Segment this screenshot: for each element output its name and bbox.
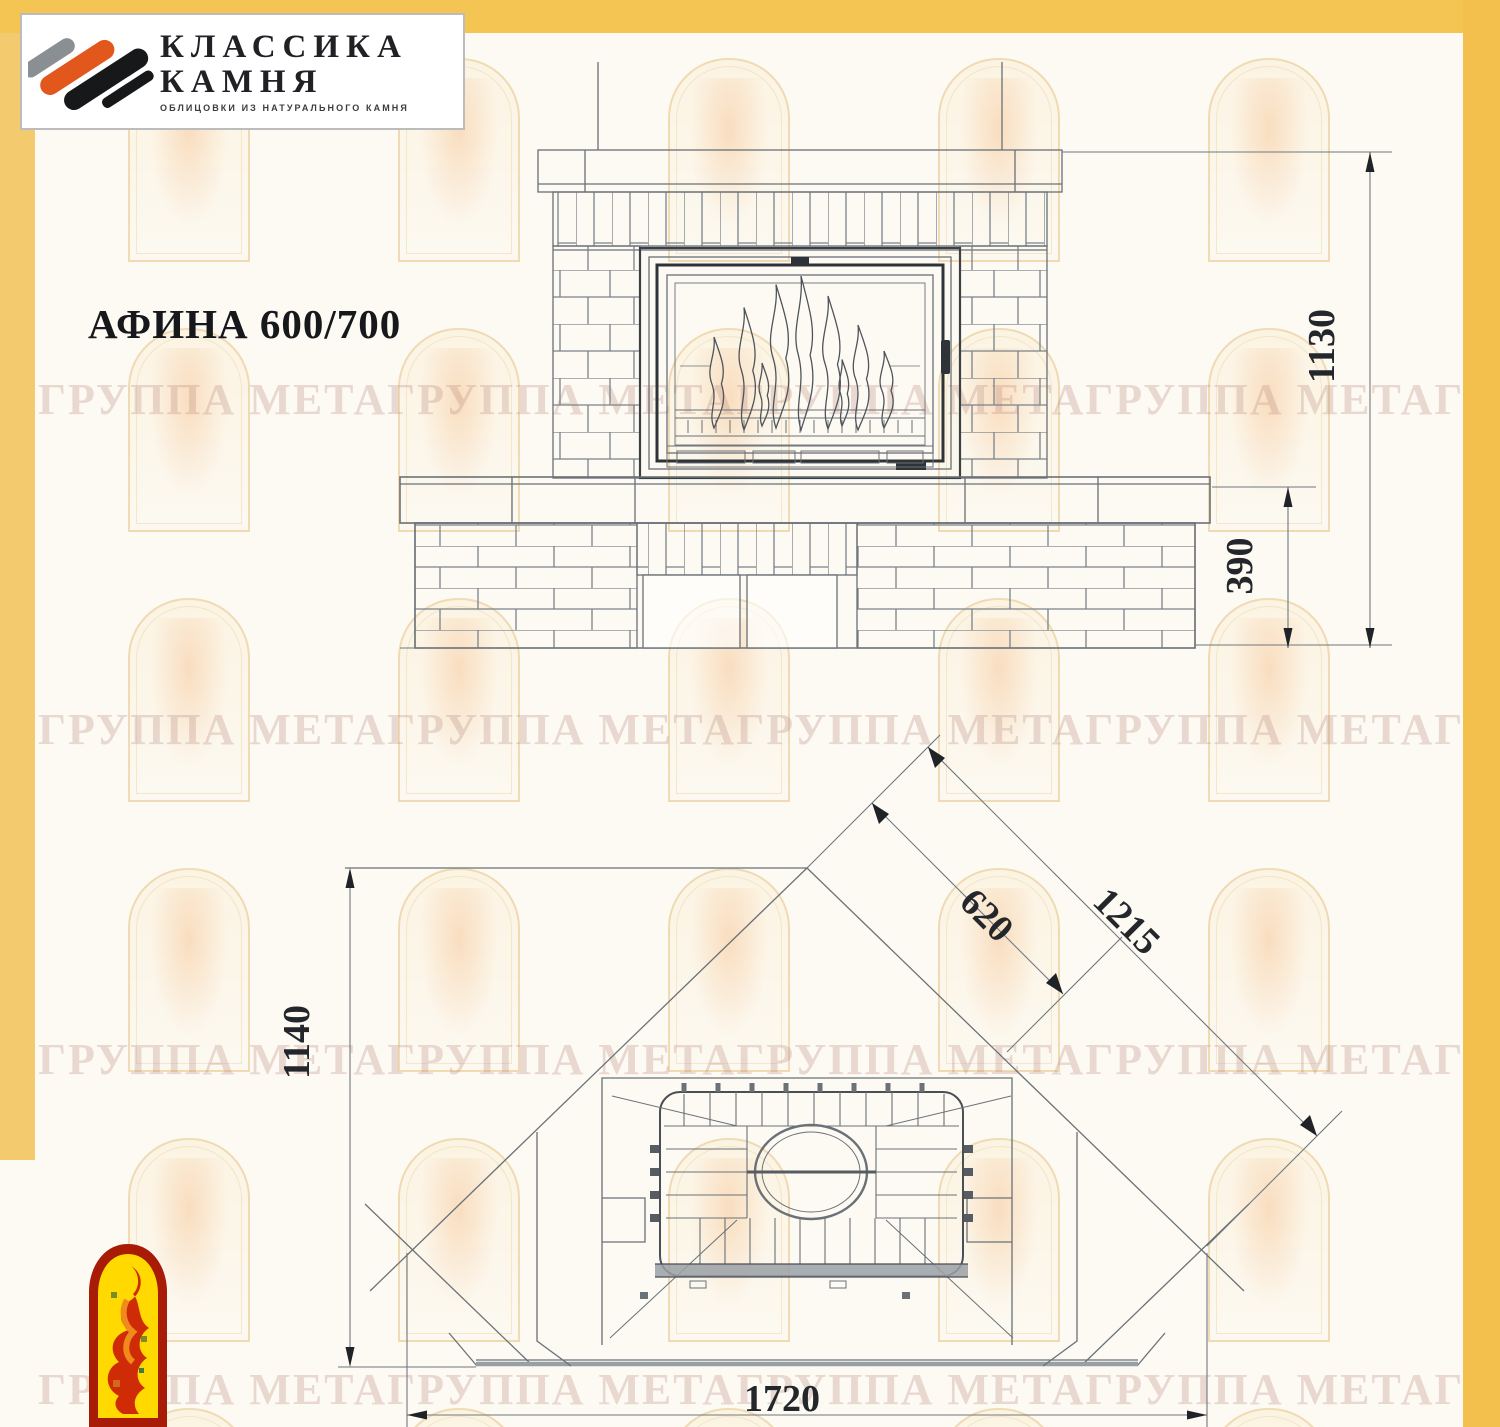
door-top-latch xyxy=(791,257,809,264)
technical-drawing: 1130 390 xyxy=(0,0,1500,1427)
mantel-joints xyxy=(538,150,1062,192)
left-stone-column xyxy=(553,246,640,478)
door-handle xyxy=(941,340,950,374)
firebox-door xyxy=(640,248,960,478)
front-elevation-view xyxy=(400,62,1210,648)
mantel-shelf xyxy=(538,150,1062,192)
plan-view-dimensions: 1140 1720 620 1215 xyxy=(276,735,1342,1427)
insert-front-band xyxy=(655,1264,968,1277)
plinth-niche-panel xyxy=(643,575,740,648)
dim-hearth-front: 620 xyxy=(951,881,1021,951)
fire-arch-emblem xyxy=(83,1240,173,1427)
plinth-soldier-band xyxy=(637,523,857,575)
floor-marks xyxy=(640,1292,910,1299)
bench-end-faces xyxy=(365,1204,1249,1366)
dim-overall-height: 1130 xyxy=(1301,309,1343,383)
insert-feet xyxy=(690,1281,846,1288)
hearth-joints xyxy=(400,477,1210,523)
arrowheads xyxy=(346,747,1318,1420)
dim-overall-width: 1720 xyxy=(744,1378,820,1420)
insert-top-ribs xyxy=(664,1092,959,1126)
dim-side-wall: 1215 xyxy=(1085,880,1168,963)
chimney-lines xyxy=(598,62,1002,150)
vent-band xyxy=(667,446,933,467)
bench-chamfers xyxy=(449,1333,1165,1366)
plinth-niche-panel xyxy=(747,575,837,648)
spec-sheet-page: ГРУППА МЕТАГРУППА МЕТАГРУППА МЕТАГРУППА … xyxy=(0,0,1500,1427)
plinth-right-masonry xyxy=(857,523,1195,648)
plan-view xyxy=(345,868,1249,1366)
insert-top-view xyxy=(610,1083,1013,1338)
soldier-course xyxy=(553,192,1047,246)
insert-top-ticks xyxy=(684,1083,922,1092)
right-stone-column xyxy=(960,246,1047,478)
plinth-left-masonry xyxy=(415,523,637,648)
dim-overall-depth: 1140 xyxy=(276,1005,318,1079)
insert-side-nubs xyxy=(650,1145,973,1222)
arrowheads xyxy=(1284,152,1375,648)
flames xyxy=(710,276,893,430)
brand-plate xyxy=(896,461,926,470)
dim-plinth-height: 390 xyxy=(1219,538,1261,595)
